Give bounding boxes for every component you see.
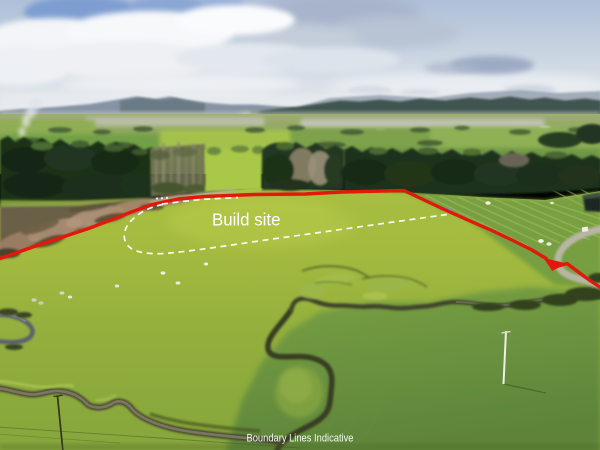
svg-text:Boundary Lines Indicative: Boundary Lines Indicative	[247, 433, 354, 445]
svg-text:Build site: Build site	[212, 210, 281, 230]
